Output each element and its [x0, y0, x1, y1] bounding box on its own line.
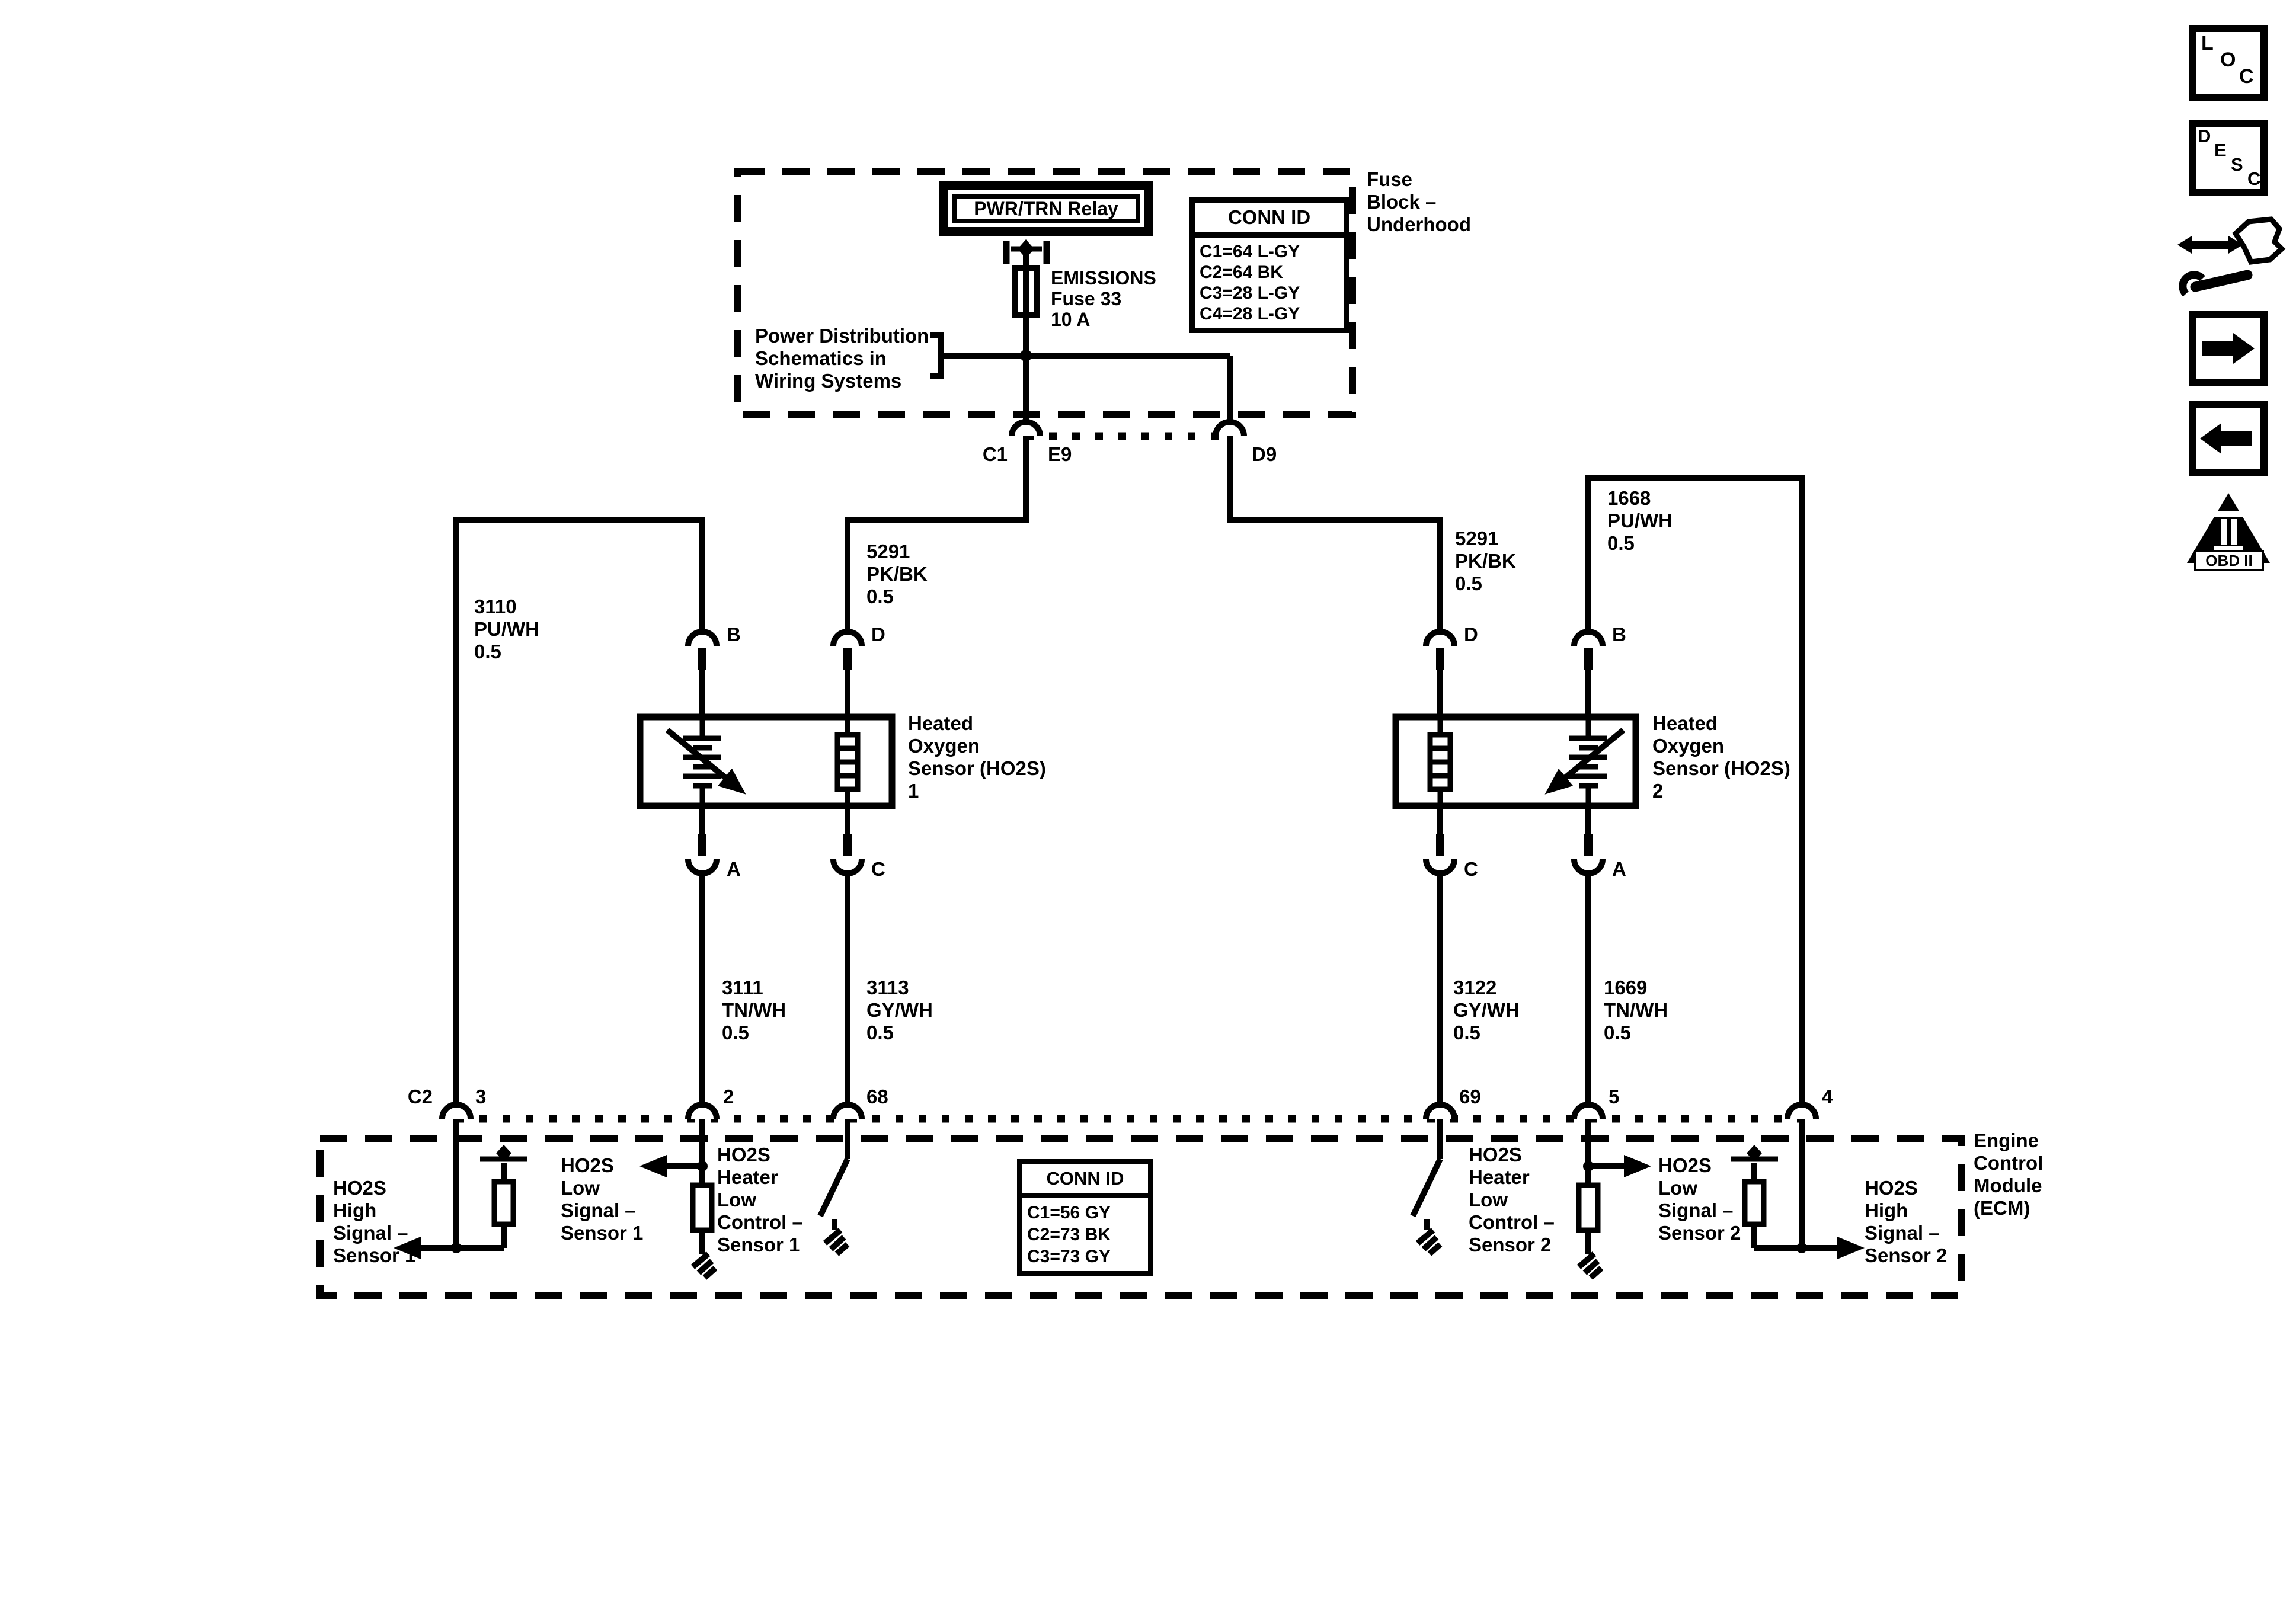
wire-label-3110: 3110PU/WH0.5	[474, 596, 539, 663]
ecm-high-signal-2-circuit	[1731, 1145, 1840, 1253]
ecm-heater-control-1-circuit	[820, 1159, 848, 1254]
desc-letter-d: D	[2198, 126, 2211, 147]
ecm-label: EngineControlModule(ECM)	[1974, 1129, 2043, 1219]
ecm-heater-control-1-label: HO2SHeaterLowControl –Sensor 1	[717, 1144, 803, 1256]
fuse-block-connectors	[1012, 422, 1244, 436]
desc-letter-e: E	[2214, 140, 2227, 161]
terminal-c-sensor1: C	[871, 858, 885, 881]
connector-label-e9: E9	[1048, 443, 1072, 466]
terminal-d-sensor2: D	[1464, 623, 1478, 646]
fuse-block-conn-id-table: CONN ID C1=64 L-GYC2=64 BKC3=28 L-GYC4=2…	[1189, 197, 1349, 333]
wire-label-3122: 3122GY/WH0.5	[1453, 977, 1520, 1044]
wiring-diagram-graphics	[0, 0, 2296, 1610]
ho2s2-label: HeatedOxygenSensor (HO2S)2	[1652, 712, 1790, 802]
wiring-diagram-page: PWR/TRN Relay EMISSIONSFuse 3310 A CONN …	[0, 0, 2296, 1610]
conn-id-rows: C1=56 GYC2=73 BKC3=73 GY	[1022, 1198, 1148, 1271]
ecm-pin-4: 4	[1822, 1086, 1833, 1108]
wire-label-5291-right: 5291PK/BK0.5	[1455, 527, 1516, 595]
terminal-b-sensor2: B	[1612, 623, 1626, 646]
ho2s2-sensor-element	[1564, 717, 1623, 806]
ho2s1-heater-element	[837, 717, 858, 806]
wire-label-3113: 3113GY/WH0.5	[866, 977, 933, 1044]
next-page-button[interactable]	[2189, 311, 2268, 386]
fuse-block-label: FuseBlock –Underhood	[1367, 168, 1471, 236]
obd2-label: OBD II	[2194, 550, 2264, 571]
connector-label-c1: C1	[966, 443, 1008, 466]
loc-letter-c: C	[2239, 65, 2254, 88]
previous-page-button[interactable]	[2189, 401, 2268, 476]
loc-letter-o: O	[2220, 49, 2236, 72]
power-distribution-note: Power DistributionSchematics inWiring Sy…	[755, 325, 929, 392]
ho2s2-heater-element	[1430, 717, 1450, 806]
ecm-low-signal-1-circuit	[664, 1161, 715, 1278]
ecm-heater-control-2-circuit	[1413, 1159, 1440, 1254]
wire-label-5291-left: 5291PK/BK0.5	[866, 540, 928, 608]
ecm-connector-c2-label: C2	[385, 1086, 433, 1108]
ecm-high-signal-2-label: HO2SHighSignal –Sensor 2	[1865, 1177, 1947, 1267]
ecm-heater-control-2-label: HO2SHeaterLowControl –Sensor 2	[1469, 1144, 1555, 1256]
conn-id-header: CONN ID	[1022, 1164, 1148, 1198]
ecm-high-signal-1-label: HO2SHighSignal –Sensor 1	[333, 1177, 415, 1267]
ecm-pin-2: 2	[723, 1086, 734, 1108]
ecm-pin-68: 68	[866, 1086, 888, 1108]
terminal-a-sensor2: A	[1612, 858, 1626, 881]
ecm-low-signal-1-label: HO2SLowSignal –Sensor 1	[561, 1154, 643, 1244]
connector-label-d9: D9	[1252, 443, 1277, 466]
ecm-pin-3: 3	[475, 1086, 486, 1108]
sensor-inline-connectors	[688, 632, 1603, 873]
ecm-pin-5: 5	[1609, 1086, 1619, 1108]
ecm-pin-69: 69	[1459, 1086, 1481, 1108]
loc-button[interactable]: L O C	[2189, 25, 2268, 102]
wire-label-1669: 1669TN/WH0.5	[1604, 977, 1668, 1044]
conn-id-rows: C1=64 L-GYC2=64 BKC3=28 L-GYC4=28 L-GY	[1195, 238, 1344, 328]
ho2s1-sensor-element	[667, 717, 727, 806]
conn-id-header: CONN ID	[1195, 203, 1344, 238]
terminal-b-sensor1: B	[727, 623, 741, 646]
wire-label-3111: 3111TN/WH0.5	[722, 977, 786, 1044]
desc-letter-s: S	[2231, 154, 2243, 175]
terminal-d-sensor1: D	[871, 623, 885, 646]
pwr-trn-relay-label: PWR/TRN Relay	[952, 194, 1140, 223]
wiring-repair-button[interactable]	[2189, 217, 2268, 300]
wire-label-1668: 1668PU/WH0.5	[1607, 487, 1673, 555]
desc-letter-c: C	[2247, 168, 2260, 190]
desc-button[interactable]: D E S C	[2189, 120, 2268, 197]
junction-dot	[1020, 350, 1032, 361]
ecm-low-signal-2-label: HO2SLowSignal –Sensor 2	[1658, 1154, 1741, 1244]
emissions-fuse-label: EMISSIONSFuse 3310 A	[1051, 268, 1156, 330]
ho2s1-label: HeatedOxygenSensor (HO2S)1	[908, 712, 1046, 802]
ecm-high-signal-1-circuit	[418, 1145, 527, 1253]
terminal-a-sensor1: A	[727, 858, 741, 881]
ecm-conn-id-table: CONN ID C1=56 GYC2=73 BKC3=73 GY	[1017, 1159, 1153, 1276]
loc-letter-l: L	[2201, 32, 2214, 55]
pwr-trn-relay-box: PWR/TRN Relay	[939, 181, 1153, 236]
terminal-c-sensor2: C	[1464, 858, 1478, 881]
